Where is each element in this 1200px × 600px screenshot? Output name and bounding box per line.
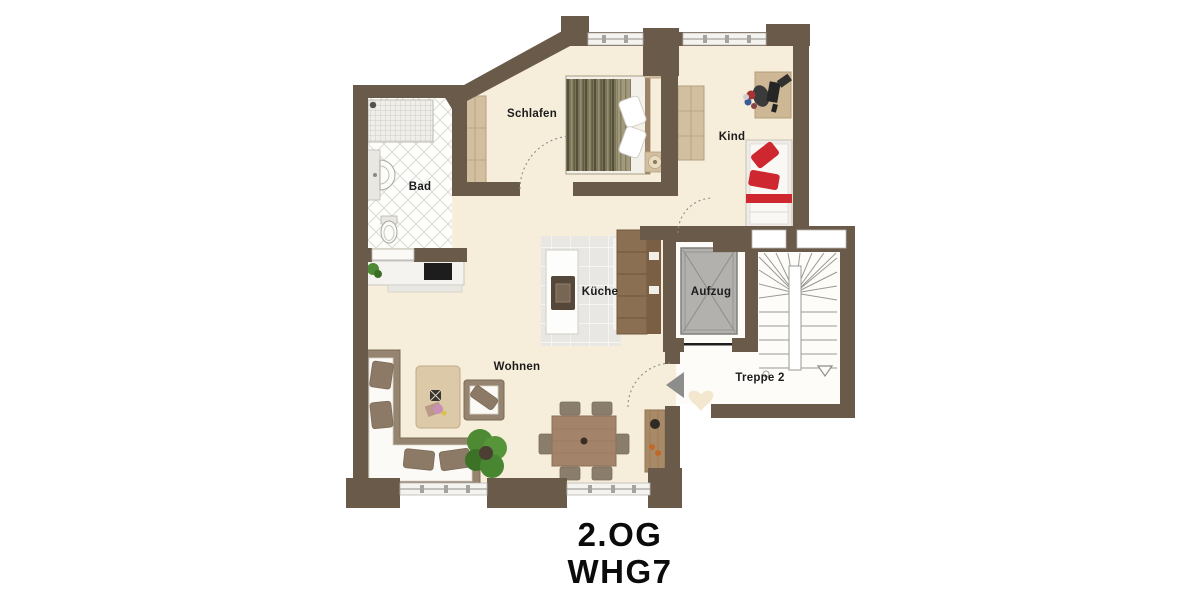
tv [424,263,452,280]
elevator-door-line [684,343,734,346]
kitchen-cabinets [613,230,661,334]
toilet-bowl [381,221,397,243]
coffee-table [416,366,460,428]
unit-title: WHG7 [568,553,673,591]
room-label-wohnen: Wohnen [494,361,541,373]
window-bottom-2 [567,483,650,495]
kind-bed [746,140,792,228]
window-top-1 [588,33,643,45]
window-bottom-1 [400,483,487,495]
stair-newel [789,266,801,370]
entry-sideboard [645,410,665,472]
room-label-schlafen: Schlafen [507,108,557,120]
room-label-bad: Bad [409,181,431,193]
stairwell-niches [752,230,846,248]
kitchen-island [546,250,578,334]
room-label-treppe: Treppe 2 [735,372,784,384]
floor-title: 2.OG [578,516,663,554]
schlafen-wardrobe [464,96,486,192]
room-label-kind: Kind [719,131,746,143]
shower-head-icon [370,102,376,108]
floor-plan-page: Schlafen Kind Bad Küche Wohnen Aufzug Tr… [0,0,1200,600]
room-label-aufzug: Aufzug [691,286,731,298]
room-label-kueche: Küche [582,286,618,298]
window-top-2 [683,33,766,45]
bath-door-leaf [372,249,414,260]
armchair [464,380,504,420]
kind-wardrobe [678,86,704,160]
floor-plan-svg [0,0,1200,600]
